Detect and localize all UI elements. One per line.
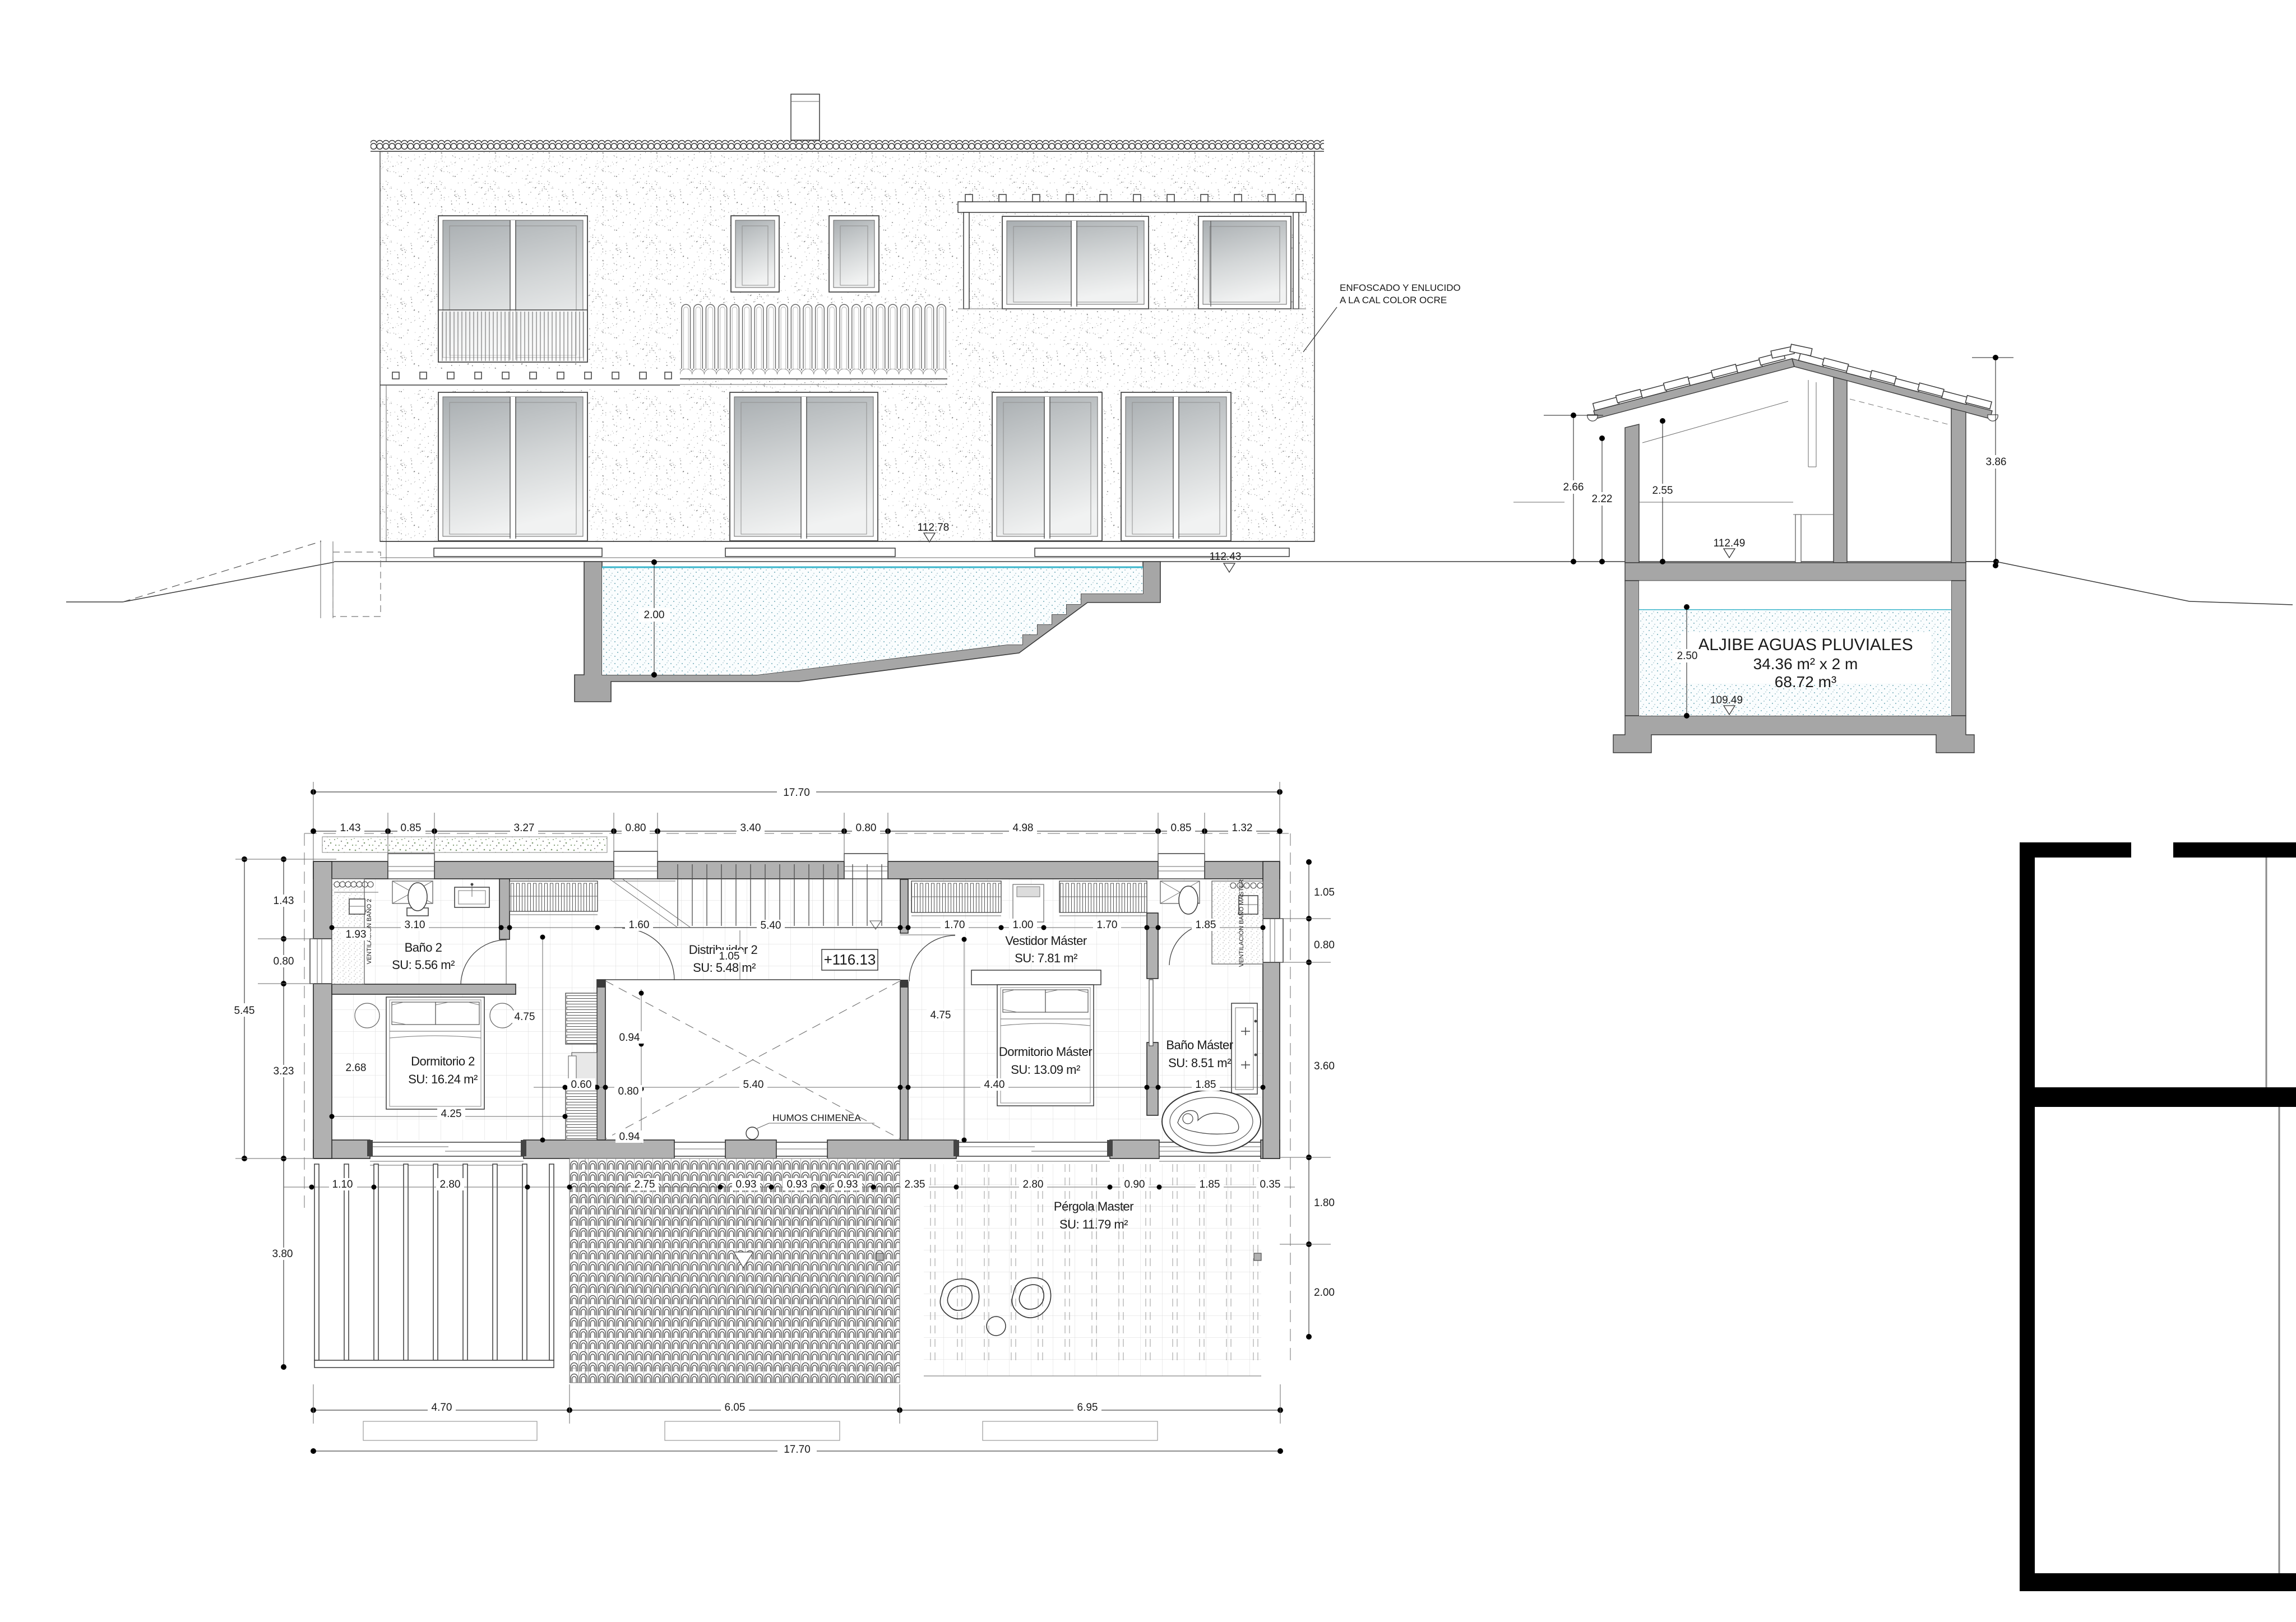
svg-text:0.85: 0.85 xyxy=(401,822,422,834)
svg-text:Vestidor Máster: Vestidor Máster xyxy=(1005,934,1087,948)
svg-text:1.80: 1.80 xyxy=(1314,1197,1335,1209)
svg-text:2.50: 2.50 xyxy=(1677,650,1698,662)
svg-text:2.35: 2.35 xyxy=(905,1179,925,1190)
svg-text:Baño Máster: Baño Máster xyxy=(1166,1038,1233,1052)
svg-text:112.49: 112.49 xyxy=(1714,537,1746,549)
svg-text:2.00: 2.00 xyxy=(644,609,665,621)
svg-text:3.23: 3.23 xyxy=(274,1065,294,1077)
svg-text:4.40: 4.40 xyxy=(984,1079,1005,1091)
svg-text:Dormitorio Máster: Dormitorio Máster xyxy=(999,1045,1092,1059)
svg-text:0.80: 0.80 xyxy=(618,1086,639,1097)
svg-text:SU: 5.56 m²: SU: 5.56 m² xyxy=(392,958,455,972)
svg-text:0.93: 0.93 xyxy=(837,1179,858,1190)
svg-text:0.94: 0.94 xyxy=(619,1032,640,1044)
svg-text:112.43: 112.43 xyxy=(1210,551,1242,563)
svg-text:SU: 7.81 m²: SU: 7.81 m² xyxy=(1015,951,1077,965)
svg-text:3.10: 3.10 xyxy=(405,919,425,931)
svg-text:34.36 m² x 2 m: 34.36 m² x 2 m xyxy=(1753,655,1858,673)
svg-text:2.55: 2.55 xyxy=(1652,485,1673,497)
svg-text:0.90: 0.90 xyxy=(1124,1179,1145,1190)
svg-text:Baño 2: Baño 2 xyxy=(405,940,442,954)
svg-text:1.70: 1.70 xyxy=(1097,919,1118,931)
svg-text:Dormitorio 2: Dormitorio 2 xyxy=(411,1054,475,1068)
svg-text:SU: 16.24 m²: SU: 16.24 m² xyxy=(408,1072,478,1086)
svg-text:2.00: 2.00 xyxy=(1314,1287,1335,1299)
svg-text:4.70: 4.70 xyxy=(432,1402,452,1414)
svg-text:0.93: 0.93 xyxy=(787,1179,808,1190)
svg-text:ENFOSCADO Y ENLUCIDO: ENFOSCADO Y ENLUCIDO xyxy=(1340,282,1461,293)
svg-text:5.40: 5.40 xyxy=(743,1079,764,1091)
svg-text:0.80: 0.80 xyxy=(1314,939,1335,951)
svg-text:3.80: 3.80 xyxy=(272,1248,293,1260)
svg-text:0.94: 0.94 xyxy=(619,1131,640,1143)
svg-text:6.05: 6.05 xyxy=(725,1402,746,1414)
svg-text:109.49: 109.49 xyxy=(1710,694,1743,706)
svg-text:VENTILACIÓN BAÑO MASTER: VENTILACIÓN BAÑO MASTER xyxy=(1238,879,1245,967)
svg-text:3.86: 3.86 xyxy=(1986,456,2007,468)
svg-text:68.72 m³: 68.72 m³ xyxy=(1775,673,1837,690)
svg-text:0.80: 0.80 xyxy=(856,822,877,834)
svg-text:0.93: 0.93 xyxy=(736,1179,757,1190)
svg-text:1.85: 1.85 xyxy=(1196,919,1216,931)
svg-text:1.43: 1.43 xyxy=(274,895,294,907)
svg-text:5.40: 5.40 xyxy=(761,920,781,932)
svg-text:0.35: 0.35 xyxy=(1260,1179,1281,1190)
svg-text:17.70: 17.70 xyxy=(784,1444,811,1456)
svg-text:1.32: 1.32 xyxy=(1232,822,1253,834)
svg-text:1.05: 1.05 xyxy=(1314,887,1335,898)
svg-text:A LA CAL COLOR OCRE: A LA CAL COLOR OCRE xyxy=(1340,295,1447,305)
svg-text:1.85: 1.85 xyxy=(1196,1079,1216,1091)
svg-text:1.10: 1.10 xyxy=(332,1179,353,1190)
svg-text:112.78: 112.78 xyxy=(918,522,950,534)
svg-text:0.85: 0.85 xyxy=(1171,822,1192,834)
svg-text:SU: 8.51 m²: SU: 8.51 m² xyxy=(1168,1056,1231,1070)
svg-text:17.70: 17.70 xyxy=(783,787,810,799)
svg-text:5.45: 5.45 xyxy=(234,1005,255,1017)
svg-text:0.80: 0.80 xyxy=(274,956,294,967)
svg-text:SU: 11.79 m²: SU: 11.79 m² xyxy=(1059,1217,1128,1231)
svg-text:+116.13: +116.13 xyxy=(824,951,876,968)
svg-text:HUMOS CHIMENEA: HUMOS CHIMENEA xyxy=(772,1113,861,1123)
svg-text:1.85: 1.85 xyxy=(1200,1179,1220,1190)
svg-text:4.75: 4.75 xyxy=(515,1011,535,1023)
svg-text:3.60: 3.60 xyxy=(1314,1060,1335,1072)
svg-text:4.75: 4.75 xyxy=(931,1009,951,1021)
svg-text:Pérgola Master: Pérgola Master xyxy=(1054,1199,1133,1213)
svg-text:2.80: 2.80 xyxy=(440,1179,461,1190)
svg-text:1.60: 1.60 xyxy=(629,919,650,931)
svg-text:2.80: 2.80 xyxy=(1023,1179,1044,1190)
svg-text:1.93: 1.93 xyxy=(346,929,367,940)
svg-text:3.27: 3.27 xyxy=(514,822,535,834)
svg-text:2.66: 2.66 xyxy=(1563,481,1584,493)
svg-text:2.22: 2.22 xyxy=(1592,493,1613,505)
svg-text:4.25: 4.25 xyxy=(441,1108,462,1120)
svg-text:1.00: 1.00 xyxy=(1013,919,1034,931)
svg-text:ALJIBE AGUAS PLUVIALES: ALJIBE AGUAS PLUVIALES xyxy=(1698,636,1913,654)
svg-text:4.98: 4.98 xyxy=(1013,822,1034,834)
svg-text:2.75: 2.75 xyxy=(635,1179,655,1190)
svg-text:0.60: 0.60 xyxy=(571,1079,592,1091)
svg-text:1.70: 1.70 xyxy=(945,919,965,931)
svg-text:1.05: 1.05 xyxy=(719,951,740,962)
svg-text:0.80: 0.80 xyxy=(626,822,646,834)
svg-text:SU: 5.48 m²: SU: 5.48 m² xyxy=(693,961,756,975)
svg-text:6.95: 6.95 xyxy=(1077,1402,1098,1414)
svg-text:3.40: 3.40 xyxy=(740,822,761,834)
svg-text:2.68: 2.68 xyxy=(346,1062,367,1074)
svg-text:SU: 13.09 m²: SU: 13.09 m² xyxy=(1011,1063,1080,1077)
svg-text:1.43: 1.43 xyxy=(340,822,361,834)
